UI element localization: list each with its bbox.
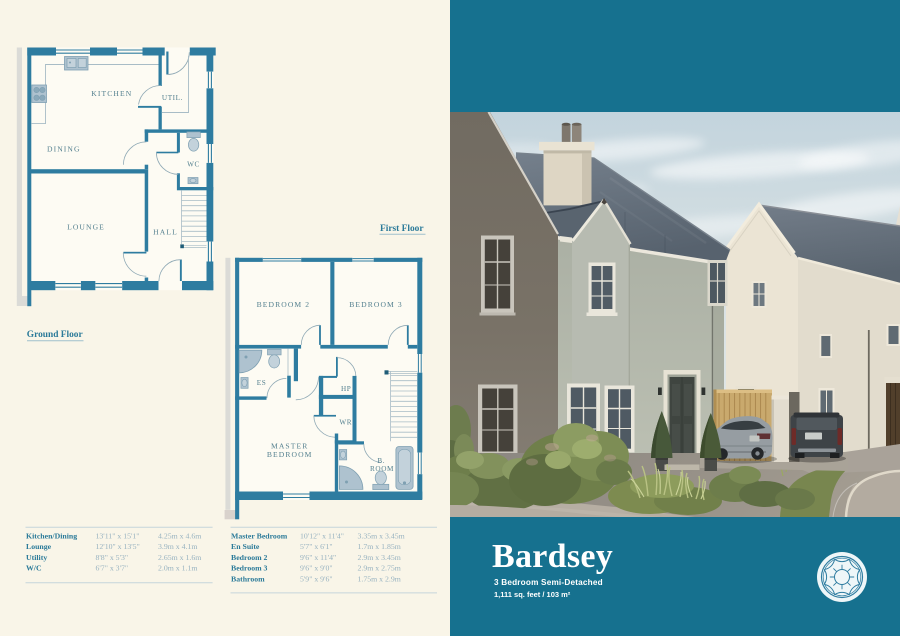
svg-text:12'10" x 13'5": 12'10" x 13'5" xyxy=(96,542,140,551)
svg-text:WR: WR xyxy=(339,419,352,427)
svg-text:Master Bedroom: Master Bedroom xyxy=(231,531,288,540)
svg-text:W/C: W/C xyxy=(26,564,42,573)
svg-text:HALL: HALL xyxy=(153,228,178,237)
svg-text:ES: ES xyxy=(257,379,267,387)
svg-text:2.9m x 3.45m: 2.9m x 3.45m xyxy=(358,553,401,562)
svg-text:1.75m x 2.9m: 1.75m x 2.9m xyxy=(358,575,401,584)
svg-text:10'12" x 11'4": 10'12" x 11'4" xyxy=(300,531,344,540)
svg-text:HP: HP xyxy=(341,385,351,393)
svg-text:Bathroom: Bathroom xyxy=(231,575,265,584)
svg-text:5'7" x 6'1": 5'7" x 6'1" xyxy=(300,542,333,551)
svg-text:BEDROOM 3: BEDROOM 3 xyxy=(349,300,403,309)
svg-text:6'7" x 3'7": 6'7" x 3'7" xyxy=(96,564,129,573)
svg-text:LOUNGE: LOUNGE xyxy=(67,222,105,231)
svg-text:WC: WC xyxy=(187,161,200,169)
svg-text:4.25m x 4.6m: 4.25m x 4.6m xyxy=(158,531,201,540)
svg-text:8'8" x 5'3": 8'8" x 5'3" xyxy=(96,553,129,562)
svg-text:Bedroom 2: Bedroom 2 xyxy=(231,553,268,562)
svg-text:Bedroom 3: Bedroom 3 xyxy=(231,564,268,573)
svg-text:2.0m x 1.1m: 2.0m x 1.1m xyxy=(158,564,197,573)
svg-text:First Floor: First Floor xyxy=(380,224,423,234)
svg-text:Utility: Utility xyxy=(26,553,47,562)
svg-text:Kitchen/Dining: Kitchen/Dining xyxy=(26,531,77,540)
svg-text:En Suite: En Suite xyxy=(231,542,260,551)
svg-text:5'9" x 9'6": 5'9" x 9'6" xyxy=(300,575,333,584)
svg-text:1.7m x 1.85m: 1.7m x 1.85m xyxy=(358,542,401,551)
svg-text:KITCHEN: KITCHEN xyxy=(91,89,132,98)
svg-text:2.65m x 1.6m: 2.65m x 1.6m xyxy=(158,553,201,562)
svg-text:9'6" x 9'0": 9'6" x 9'0" xyxy=(300,564,333,573)
svg-text:ROOM: ROOM xyxy=(370,465,394,473)
svg-text:Ground Floor: Ground Floor xyxy=(27,330,83,340)
svg-text:DINING: DINING xyxy=(47,145,81,154)
svg-text:3.35m x 3.45m: 3.35m x 3.45m xyxy=(358,531,405,540)
svg-text:9'6" x 11'4": 9'6" x 11'4" xyxy=(300,553,336,562)
svg-text:BEDROOM: BEDROOM xyxy=(267,450,313,459)
svg-text:13'11" x 15'1": 13'11" x 15'1" xyxy=(96,531,140,540)
svg-text:B.: B. xyxy=(377,457,385,465)
svg-text:2.9m x 2.75m: 2.9m x 2.75m xyxy=(358,564,401,573)
svg-text:BEDROOM 2: BEDROOM 2 xyxy=(257,300,311,309)
svg-text:Lounge: Lounge xyxy=(26,542,52,551)
svg-text:UTIL.: UTIL. xyxy=(162,94,183,102)
svg-text:3.9m x 4.1m: 3.9m x 4.1m xyxy=(158,542,197,551)
